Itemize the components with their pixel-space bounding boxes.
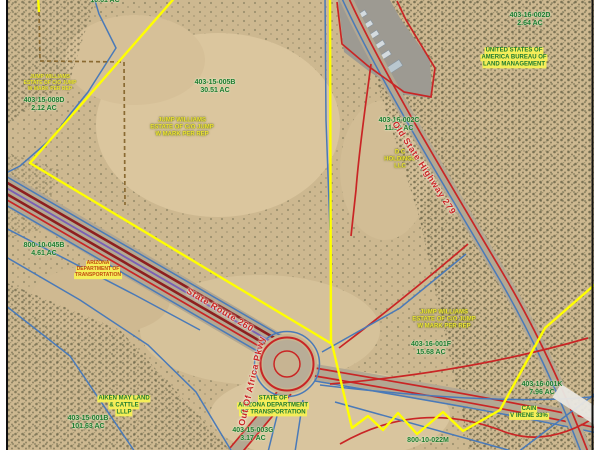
apn-001k-line: 403-16-001K (522, 381, 563, 388)
owner-045b-adot-line: TRANSPORTATION (74, 273, 122, 279)
apn-001b: 403-15-001B101.63 AC (68, 415, 109, 432)
apn-003g-line: 3.17 AC (240, 435, 265, 442)
apn-022m: 800-10-022M (407, 437, 449, 445)
owner-002d-blm-line: LAND MANAGEMENT (482, 62, 546, 69)
apn-001f-line: 403-16-001F (411, 341, 451, 348)
road-state-route-260: State Route 260 (184, 286, 255, 335)
apn-top-clipped: 10.61 AC (90, 0, 119, 5)
owner-005b-line: W MARK PER REP (155, 132, 208, 138)
owner-001k: CAINV IRENE 33% (509, 406, 549, 420)
apn-008d-line: 403-15-008D (24, 97, 65, 104)
map-viewport: 10.61 ACJUMP WILLIAMSESTATE OF C/O JUMPW… (0, 0, 600, 450)
apn-top-clipped-line: 10.61 AC (90, 0, 119, 4)
apn-002d: 403-16-002D2.64 AC (510, 12, 551, 29)
apn-002d-line: 403-16-002D (510, 12, 551, 19)
owner-adot-roundabout-line: STATE OF (258, 395, 289, 402)
apn-045b-line: 4.61 AC (31, 250, 56, 257)
apn-003g-line: 403-15-003G (232, 427, 273, 434)
owner-008d-line: W MARK PER REP (28, 86, 72, 92)
owner-001b-line: & CATTLE (108, 402, 139, 409)
apn-005b-line: 30.51 AC (200, 87, 229, 94)
owner-001k-line: V IRENE 33% (509, 413, 549, 420)
apn-005b-line: 403-15-005B (195, 79, 236, 86)
owner-002d-blm-line: AMERICA BUREAU OF (480, 54, 547, 61)
owner-045b-adot: ARIZONADEPARTMENT OFTRANSPORTATION (74, 261, 122, 279)
owner-001f-line: JUMP WILLIAMS (420, 309, 468, 315)
apn-002d-line: 2.64 AC (517, 20, 542, 27)
apn-008d-line: 2.12 AC (31, 105, 56, 112)
owner-005b: JUMP WILLIAMSESTATE OF C/O JUMPW MARK PE… (150, 117, 213, 138)
apn-001f-line: 15.68 AC (416, 349, 445, 356)
apn-022m-line: 800-10-022M (407, 437, 449, 444)
owner-008d: JUMP WILLIAMSESTATE OF C/O JUMPW MARK PE… (24, 75, 77, 93)
apn-001b-line: 101.63 AC (71, 423, 104, 430)
apn-045b: 800-10-045B4.61 AC (24, 242, 65, 259)
owner-001b-line: AIKEN MAY LAND (97, 395, 150, 402)
apn-008d: 403-15-008D2.12 AC (24, 97, 65, 114)
owner-005b-line: ESTATE OF C/O JUMP (150, 124, 213, 130)
owner-001f-line: W MARK PER REP (417, 324, 470, 330)
owner-002d-blm: UNITED STATES OFAMERICA BUREAU OFLAND MA… (480, 47, 547, 68)
owner-001f: JUMP WILLIAMSESTATE OF C/O JUMPW MARK PE… (412, 309, 475, 330)
apn-003g: 403-15-003G3.17 AC (232, 427, 273, 444)
apn-001k: 403-16-001K7.96 AC (522, 381, 563, 398)
owner-002c-line: LLC (394, 164, 406, 170)
apn-045b-line: 800-10-045B (24, 242, 65, 249)
owner-005b-line: JUMP WILLIAMS (158, 117, 206, 123)
apn-001k-line: 7.96 AC (529, 389, 554, 396)
screenshot-root: { "map": { "colors": { "parcel_boundary_… (0, 0, 600, 450)
apn-001b-line: 403-15-001B (68, 415, 109, 422)
owner-002c-line: D C (395, 149, 405, 155)
owner-001k-line: CAIN (521, 406, 538, 413)
owner-001b: AIKEN MAY LAND& CATTLELLLP (97, 395, 150, 416)
map-labels: 10.61 ACJUMP WILLIAMSESTATE OF C/O JUMPW… (0, 0, 600, 450)
apn-005b: 403-15-005B30.51 AC (195, 79, 236, 96)
owner-001b-line: LLLP (116, 410, 133, 417)
owner-001f-line: ESTATE OF C/O JUMP (412, 316, 475, 322)
owner-002d-blm-line: UNITED STATES OF (485, 47, 544, 54)
apn-001f: 403-16-001F15.68 AC (411, 341, 451, 358)
